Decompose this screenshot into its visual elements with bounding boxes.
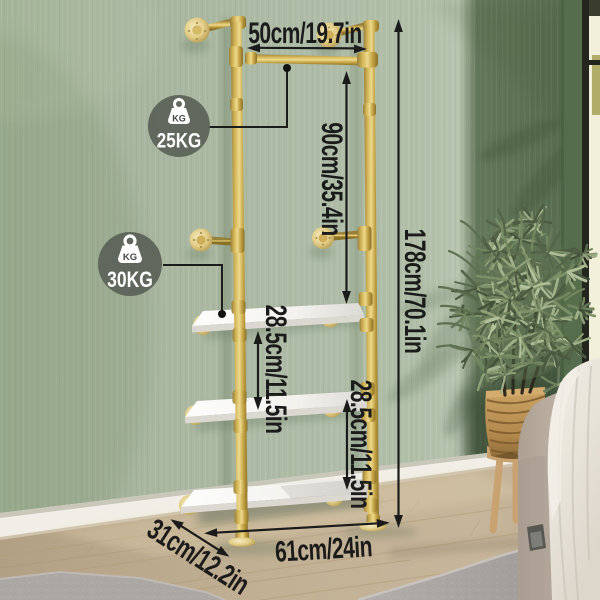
svg-text:178cm/70.1in: 178cm/70.1in xyxy=(398,229,430,354)
svg-text:KG: KG xyxy=(172,114,186,124)
svg-text:28.5cm/11.5in: 28.5cm/11.5in xyxy=(344,380,376,509)
svg-text:25KG: 25KG xyxy=(157,130,201,153)
svg-text:KG: KG xyxy=(123,252,137,263)
svg-text:30KG: 30KG xyxy=(107,268,153,292)
svg-text:90cm/35.4in: 90cm/35.4in xyxy=(315,122,347,236)
svg-text:28.5cm/11.5in: 28.5cm/11.5in xyxy=(259,305,291,434)
svg-text:61cm/24in: 61cm/24in xyxy=(274,531,373,569)
svg-text:50cm/19.7in: 50cm/19.7in xyxy=(248,18,362,50)
